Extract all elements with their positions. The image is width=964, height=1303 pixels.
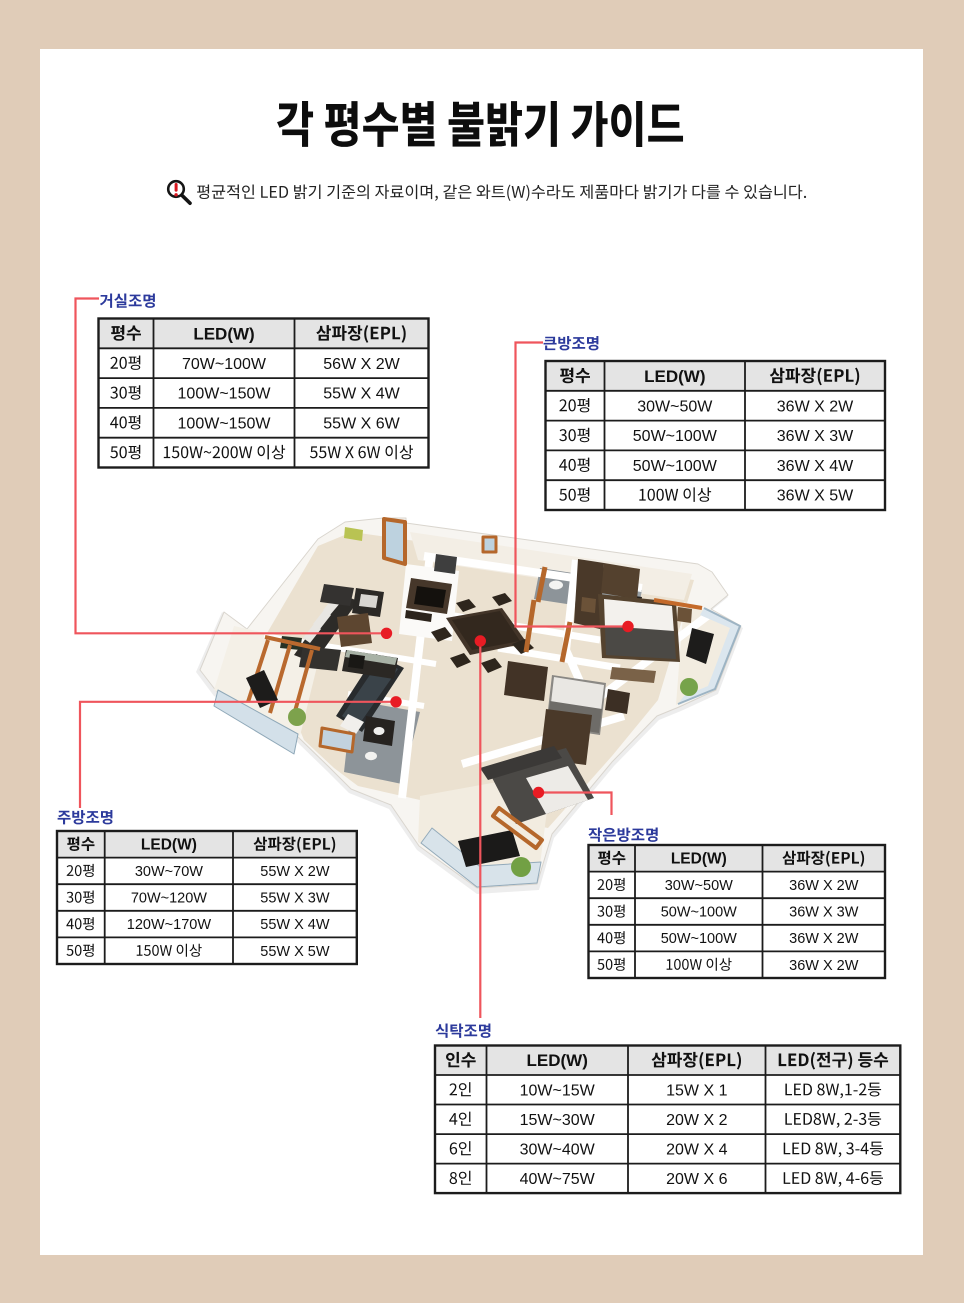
svg-text:36W X 2W: 36W X 2W xyxy=(789,958,859,974)
svg-text:30W~40W: 30W~40W xyxy=(520,1141,596,1158)
svg-text:36W X 2W: 36W X 2W xyxy=(789,878,859,894)
svg-text:36W X 3W: 36W X 3W xyxy=(789,905,859,921)
svg-text:LED(W): LED(W) xyxy=(527,1051,588,1070)
svg-text:20W X 4: 20W X 4 xyxy=(666,1141,727,1158)
svg-text:55W X 2W: 55W X 2W xyxy=(260,864,330,880)
svg-text:LED(W): LED(W) xyxy=(193,324,254,343)
svg-text:50W~100W: 50W~100W xyxy=(633,428,718,445)
svg-text:LED(W): LED(W) xyxy=(644,367,705,386)
svg-text:56W X 2W: 56W X 2W xyxy=(323,356,400,373)
svg-text:15W~30W: 15W~30W xyxy=(520,1112,596,1129)
svg-text:40W~75W: 40W~75W xyxy=(520,1171,596,1188)
svg-text:55W X 5W: 55W X 5W xyxy=(260,944,330,960)
svg-text:70W~100W: 70W~100W xyxy=(182,356,267,373)
svg-text:30W~70W: 30W~70W xyxy=(135,864,203,880)
svg-text:36W X 3W: 36W X 3W xyxy=(777,428,854,445)
svg-text:10W~15W: 10W~15W xyxy=(520,1082,596,1099)
svg-text:55W X 4W: 55W X 4W xyxy=(323,386,400,403)
svg-text:36W X 2W: 36W X 2W xyxy=(777,398,854,415)
svg-text:LED(W): LED(W) xyxy=(141,837,197,854)
svg-text:55W X 6W: 55W X 6W xyxy=(323,415,400,432)
svg-text:36W X 4W: 36W X 4W xyxy=(777,458,854,475)
svg-text:30W~50W: 30W~50W xyxy=(665,878,733,894)
svg-text:20W X 2: 20W X 2 xyxy=(666,1112,727,1129)
svg-text:100W~150W: 100W~150W xyxy=(178,415,272,432)
svg-text:36W X 2W: 36W X 2W xyxy=(789,931,859,947)
svg-text:36W X 5W: 36W X 5W xyxy=(777,488,854,505)
svg-text:30W~50W: 30W~50W xyxy=(637,398,713,415)
svg-text:50W~100W: 50W~100W xyxy=(633,458,718,475)
svg-text:55W X 3W: 55W X 3W xyxy=(260,891,330,907)
svg-text:50W~100W: 50W~100W xyxy=(661,931,737,947)
svg-text:50W~100W: 50W~100W xyxy=(661,905,737,921)
svg-text:55W X 4W: 55W X 4W xyxy=(260,917,330,933)
svg-text:100W~150W: 100W~150W xyxy=(178,386,272,403)
svg-text:70W~120W: 70W~120W xyxy=(131,891,207,907)
svg-text:120W~170W: 120W~170W xyxy=(127,917,212,933)
svg-text:15W X 1: 15W X 1 xyxy=(666,1082,727,1099)
svg-text:LED(W): LED(W) xyxy=(671,851,727,868)
svg-text:20W X 6: 20W X 6 xyxy=(666,1171,727,1188)
